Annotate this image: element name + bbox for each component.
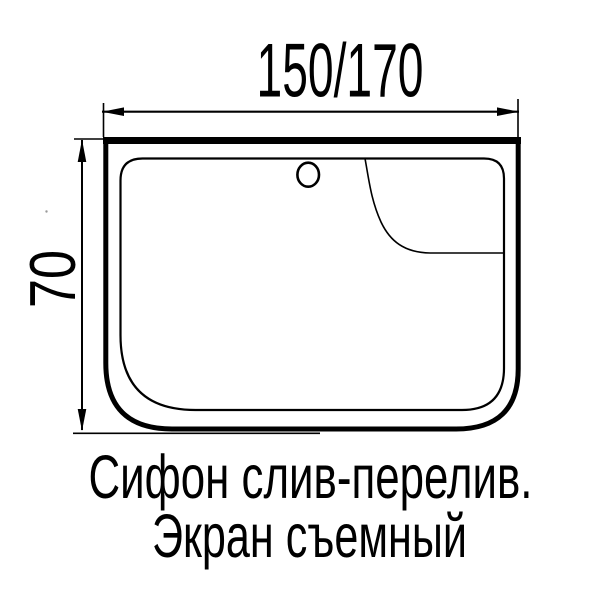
height-dimension-label: 70 (16, 250, 89, 308)
dimension-arrow-down-icon (78, 409, 87, 431)
tub-inner-rim (121, 159, 505, 411)
caption-line-1: Сифон слив-перелив. (89, 443, 533, 511)
bathtub-technical-drawing: 150/170 70 Сифон слив-перелив. Экран съе… (0, 0, 600, 600)
dimension-arrow-left-icon (102, 107, 124, 116)
width-dimension-label: 150/170 (257, 29, 424, 114)
caption-line-2: Экран съемный (152, 502, 467, 570)
drawing-svg: 150/170 70 Сифон слив-перелив. Экран съе… (0, 0, 600, 600)
print-speck (45, 210, 47, 212)
overflow-hole (297, 163, 319, 187)
seat-shelf-outline (365, 159, 503, 254)
tub-outer-outline (106, 141, 518, 430)
dimension-arrow-up-icon (78, 140, 87, 163)
dimension-arrow-right-icon (497, 107, 519, 116)
